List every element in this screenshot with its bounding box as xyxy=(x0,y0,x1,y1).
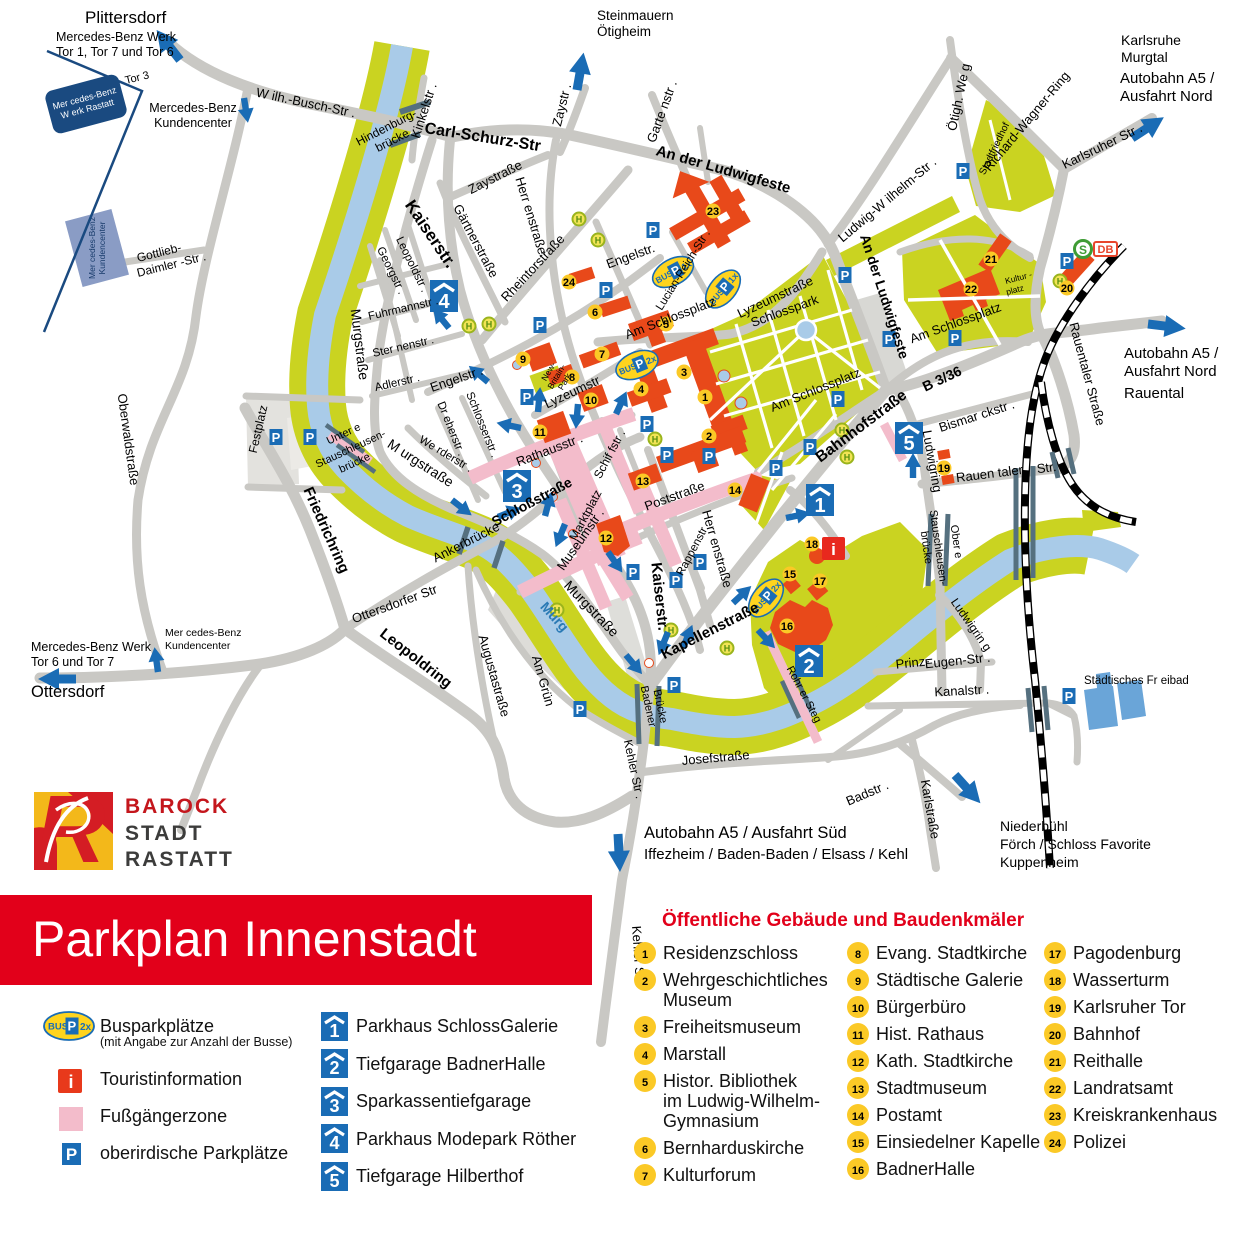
svg-text:Postamt: Postamt xyxy=(876,1105,942,1125)
svg-text:23: 23 xyxy=(1049,1111,1061,1123)
svg-text:Einsiedelner Kapelle: Einsiedelner Kapelle xyxy=(876,1132,1040,1152)
svg-text:22: 22 xyxy=(1049,1084,1061,1096)
svg-text:Autobahn A5 / Ausfahrt Süd: Autobahn A5 / Ausfahrt Süd xyxy=(644,824,847,842)
svg-text:4: 4 xyxy=(642,1050,649,1062)
svg-text:Kundencenter: Kundencenter xyxy=(165,640,231,652)
svg-text:6: 6 xyxy=(592,307,598,319)
svg-text:Parkhaus SchlossGalerie: Parkhaus SchlossGalerie xyxy=(356,1016,558,1036)
svg-text:Kanalstr .: Kanalstr . xyxy=(934,682,990,700)
svg-text:Museum: Museum xyxy=(663,990,732,1010)
svg-text:Autobahn A5 /: Autobahn A5 / xyxy=(1120,70,1215,87)
svg-text:(mit Angabe zur Anzahl der Bus: (mit Angabe zur Anzahl der Busse) xyxy=(100,1035,292,1049)
svg-text:15: 15 xyxy=(784,569,796,581)
svg-text:3: 3 xyxy=(681,367,687,379)
svg-text:2: 2 xyxy=(642,976,648,988)
svg-text:Tor 1, Tor 7 und Tor 6: Tor 1, Tor 7 und Tor 6 xyxy=(56,45,174,59)
svg-text:18: 18 xyxy=(806,539,818,551)
svg-text:8: 8 xyxy=(855,949,861,961)
svg-text:10: 10 xyxy=(585,395,597,407)
svg-text:Parkhaus Modepark Röther: Parkhaus Modepark Röther xyxy=(356,1129,576,1149)
svg-text:24: 24 xyxy=(563,277,576,289)
svg-text:Stadtmuseum: Stadtmuseum xyxy=(876,1078,987,1098)
svg-text:1: 1 xyxy=(702,392,708,404)
svg-text:Städtisches Fr eibad: Städtisches Fr eibad xyxy=(1084,675,1189,687)
svg-text:STADT: STADT xyxy=(125,822,203,845)
svg-text:Städtische Galerie: Städtische Galerie xyxy=(876,970,1023,990)
svg-text:Plittersdorf: Plittersdorf xyxy=(85,8,167,27)
svg-text:20: 20 xyxy=(1049,1030,1061,1042)
svg-text:Autobahn A5 /: Autobahn A5 / xyxy=(1124,345,1219,362)
svg-text:Karlsruhe: Karlsruhe xyxy=(1121,32,1181,48)
svg-text:14: 14 xyxy=(729,485,742,497)
svg-text:10: 10 xyxy=(852,1003,864,1015)
svg-text:Tiefgarage BadnerHalle: Tiefgarage BadnerHalle xyxy=(356,1054,545,1074)
svg-text:13: 13 xyxy=(852,1084,864,1096)
svg-text:Touristinformation: Touristinformation xyxy=(100,1069,242,1089)
svg-text:1: 1 xyxy=(642,949,648,961)
svg-text:11: 11 xyxy=(534,427,546,439)
svg-text:23: 23 xyxy=(707,206,719,218)
svg-text:Mercedes-Benz: Mercedes-Benz xyxy=(149,101,237,115)
svg-text:22: 22 xyxy=(965,284,977,296)
svg-text:Landratsamt: Landratsamt xyxy=(1073,1078,1173,1098)
svg-text:Mer cedes-Benz: Mer cedes-Benz xyxy=(165,627,241,639)
svg-text:Kulturforum: Kulturforum xyxy=(663,1165,756,1185)
svg-text:Bernharduskirche: Bernharduskirche xyxy=(663,1138,804,1158)
svg-text:Kuppenheim: Kuppenheim xyxy=(1000,854,1079,870)
svg-text:Kreiskrankenhaus: Kreiskrankenhaus xyxy=(1073,1105,1217,1125)
svg-text:7: 7 xyxy=(599,349,605,361)
svg-text:4: 4 xyxy=(438,291,450,313)
svg-text:18: 18 xyxy=(1049,976,1061,988)
svg-text:Freiheitsmuseum: Freiheitsmuseum xyxy=(663,1017,801,1037)
svg-text:Ausfahrt Nord: Ausfahrt Nord xyxy=(1124,363,1217,380)
svg-text:11: 11 xyxy=(852,1030,864,1042)
svg-text:Ottersdorf: Ottersdorf xyxy=(31,683,105,701)
svg-text:5: 5 xyxy=(642,1077,648,1089)
svg-text:19: 19 xyxy=(1049,1003,1061,1015)
svg-text:3: 3 xyxy=(642,1023,648,1035)
svg-text:4: 4 xyxy=(329,1133,339,1153)
svg-text:12: 12 xyxy=(600,533,612,545)
svg-text:5: 5 xyxy=(329,1171,339,1191)
svg-text:9: 9 xyxy=(520,354,526,366)
svg-text:Niederbühl: Niederbühl xyxy=(1000,818,1068,834)
svg-text:2: 2 xyxy=(803,656,814,678)
svg-text:2: 2 xyxy=(329,1058,339,1078)
svg-text:Mercedes-Benz Werk: Mercedes-Benz Werk xyxy=(31,640,152,654)
svg-text:oberirdische Parkplätze: oberirdische Parkplätze xyxy=(100,1143,288,1163)
svg-text:Histor. Bibliothek: Histor. Bibliothek xyxy=(663,1071,798,1091)
svg-text:DB: DB xyxy=(1098,244,1114,256)
svg-text:5: 5 xyxy=(903,433,914,455)
svg-text:9: 9 xyxy=(855,976,861,988)
svg-text:17: 17 xyxy=(814,576,826,588)
svg-text:Busparkplätze: Busparkplätze xyxy=(100,1016,214,1036)
svg-text:Reithalle: Reithalle xyxy=(1073,1051,1143,1071)
svg-text:1: 1 xyxy=(814,495,825,517)
svg-text:im Ludwig-Wilhelm-: im Ludwig-Wilhelm- xyxy=(663,1091,820,1111)
svg-text:Kath. Stadtkirche: Kath. Stadtkirche xyxy=(876,1051,1013,1071)
svg-text:P: P xyxy=(66,1145,77,1164)
svg-text:2: 2 xyxy=(706,431,712,443)
svg-text:R: R xyxy=(36,776,105,883)
svg-text:Tor 6 und Tor 7: Tor 6 und Tor 7 xyxy=(31,655,114,669)
svg-text:Str.: Str. xyxy=(1036,459,1057,476)
svg-text:24: 24 xyxy=(1049,1138,1062,1150)
svg-text:Wehrgeschichtliches: Wehrgeschichtliches xyxy=(663,970,828,990)
svg-text:12: 12 xyxy=(852,1057,864,1069)
svg-text:20: 20 xyxy=(1061,283,1073,295)
svg-text:i: i xyxy=(68,1072,73,1092)
svg-text:Steinmauern: Steinmauern xyxy=(597,8,674,23)
svg-text:Ötigheim: Ötigheim xyxy=(597,24,651,39)
svg-text:Parkplan Innenstadt: Parkplan Innenstadt xyxy=(32,911,477,967)
svg-text:Bahnhof: Bahnhof xyxy=(1073,1024,1141,1044)
svg-text:Kundencenter: Kundencenter xyxy=(154,116,232,130)
svg-text:16: 16 xyxy=(852,1165,864,1177)
svg-text:1: 1 xyxy=(329,1021,339,1041)
svg-text:Rauental: Rauental xyxy=(1124,385,1184,402)
svg-text:4: 4 xyxy=(638,384,645,396)
svg-text:14: 14 xyxy=(852,1111,865,1123)
svg-text:Bürgerbüro: Bürgerbüro xyxy=(876,997,966,1017)
svg-text:Fußgängerzone: Fußgängerzone xyxy=(100,1106,227,1126)
svg-text:15: 15 xyxy=(852,1138,864,1150)
svg-text:Iffezheim / Baden-Baden / Elsa: Iffezheim / Baden-Baden / Elsass / Kehl xyxy=(644,846,908,863)
svg-text:Ausfahrt Nord: Ausfahrt Nord xyxy=(1120,88,1213,105)
svg-text:P: P xyxy=(68,1019,77,1034)
svg-text:3: 3 xyxy=(329,1096,339,1116)
svg-text:Sparkassentiefgarage: Sparkassentiefgarage xyxy=(356,1091,531,1111)
svg-text:BadnerHalle: BadnerHalle xyxy=(876,1159,975,1179)
svg-text:Mercedes-Benz Werk: Mercedes-Benz Werk xyxy=(56,30,177,44)
svg-text:21: 21 xyxy=(1049,1057,1061,1069)
svg-text:Wasserturm: Wasserturm xyxy=(1073,970,1169,990)
svg-text:Marstall: Marstall xyxy=(663,1044,726,1064)
svg-text:Pagodenburg: Pagodenburg xyxy=(1073,943,1181,963)
svg-text:21: 21 xyxy=(985,254,997,266)
svg-text:6: 6 xyxy=(642,1144,648,1156)
svg-text:Polizei: Polizei xyxy=(1073,1132,1126,1152)
svg-text:7: 7 xyxy=(642,1171,648,1183)
svg-text:BAROCK: BAROCK xyxy=(125,795,229,818)
svg-text:S: S xyxy=(1079,243,1087,257)
svg-text:Gymnasium: Gymnasium xyxy=(663,1111,759,1131)
svg-text:2x: 2x xyxy=(80,1022,92,1033)
svg-text:Evang. Stadtkirche: Evang. Stadtkirche xyxy=(876,943,1027,963)
svg-text:Kundencenter: Kundencenter xyxy=(97,221,107,274)
svg-text:Öffentliche Gebäude und Bauden: Öffentliche Gebäude und Baudenkmäler xyxy=(662,910,1025,931)
svg-text:17: 17 xyxy=(1049,949,1061,961)
svg-text:RASTATT: RASTATT xyxy=(125,848,234,871)
svg-text:Förch / Schloss Favorite: Förch / Schloss Favorite xyxy=(1000,836,1151,852)
svg-text:Mer cedes-Benz: Mer cedes-Benz xyxy=(87,217,97,279)
svg-text:BUS: BUS xyxy=(48,1022,68,1033)
svg-text:16: 16 xyxy=(781,621,793,633)
svg-text:Residenzschloss: Residenzschloss xyxy=(663,943,798,963)
svg-text:Tiefgarage Hilberthof: Tiefgarage Hilberthof xyxy=(356,1166,524,1186)
svg-text:i: i xyxy=(831,540,836,559)
svg-text:Hist. Rathaus: Hist. Rathaus xyxy=(876,1024,984,1044)
svg-text:Karlsruher Tor: Karlsruher Tor xyxy=(1073,997,1186,1017)
svg-text:13: 13 xyxy=(637,476,649,488)
svg-text:Murgtal: Murgtal xyxy=(1121,49,1168,65)
